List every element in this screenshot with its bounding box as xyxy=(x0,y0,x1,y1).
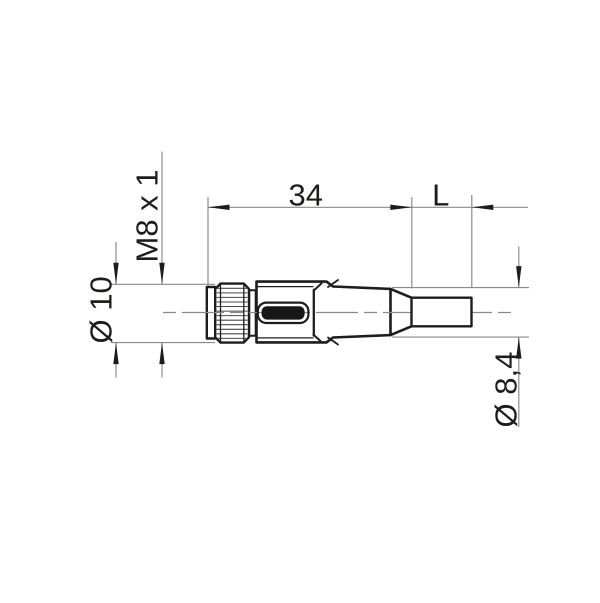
technical-drawing: 34 L M8 x 1 Ø 10 Ø 8,4 xyxy=(0,0,600,603)
arrowhead-thread-top xyxy=(159,263,164,285)
boot-taper-bottom xyxy=(391,326,412,335)
cable xyxy=(412,298,472,327)
arrowhead-34-left xyxy=(208,205,230,210)
arrowhead-boot-top xyxy=(516,266,521,288)
arrowhead-nut-bottom xyxy=(113,343,118,365)
dimension-nut-diameter: Ø 10 xyxy=(84,276,119,343)
drawing-canvas: 34 L M8 x 1 Ø 10 Ø 8,4 xyxy=(0,0,600,603)
dimension-cable-length: L xyxy=(432,177,449,212)
dimension-thread: M8 x 1 xyxy=(130,169,165,262)
boot-taper-top xyxy=(391,289,412,298)
arrowhead-thread-bottom xyxy=(159,343,164,365)
label-plate xyxy=(262,306,305,319)
dimension-boot-diameter: Ø 8,4 xyxy=(489,352,524,428)
arrowhead-34-right xyxy=(390,205,412,210)
arrowhead-L-right xyxy=(472,205,494,210)
dimension-body-length: 34 xyxy=(289,177,323,212)
connector-drawing xyxy=(163,280,513,345)
